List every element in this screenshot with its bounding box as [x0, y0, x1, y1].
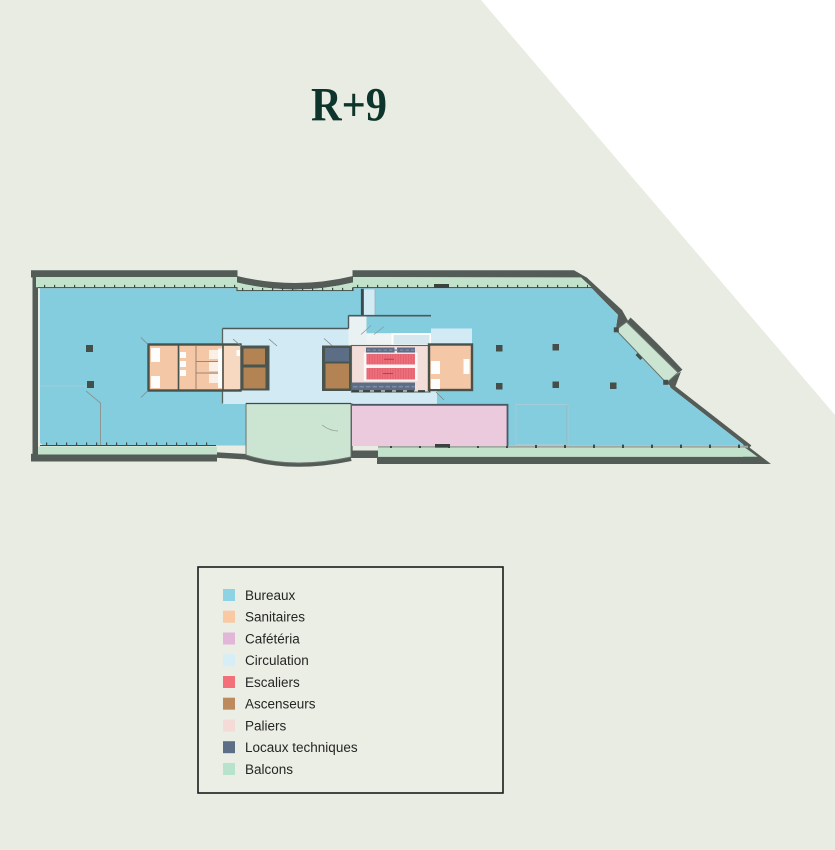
svg-text:Bureaux: Bureaux — [245, 588, 296, 603]
svg-text:Ascenseurs: Ascenseurs — [245, 697, 316, 712]
svg-text:R+9: R+9 — [311, 79, 387, 132]
svg-text:Escaliers: Escaliers — [245, 675, 300, 690]
svg-text:Paliers: Paliers — [245, 719, 287, 734]
svg-text:Locaux techniques: Locaux techniques — [245, 740, 358, 755]
svg-text:Balcons: Balcons — [245, 762, 293, 777]
svg-text:Cafétéria: Cafétéria — [245, 632, 300, 647]
svg-text:Circulation: Circulation — [245, 653, 309, 668]
svg-text:Sanitaires: Sanitaires — [245, 610, 305, 625]
